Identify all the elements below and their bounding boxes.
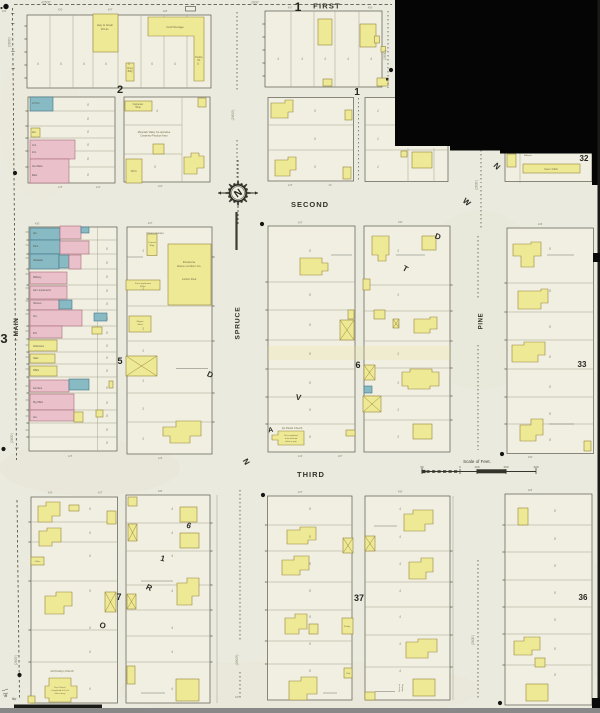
- svg-text:4: 4: [171, 589, 173, 593]
- svg-text:430: 430: [398, 490, 403, 494]
- svg-text:4: 4: [171, 507, 173, 511]
- svg-text:Completed & Occ'd: Completed & Occ'd: [51, 689, 70, 692]
- svg-text:Hardware: Hardware: [33, 260, 44, 262]
- svg-text:438: 438: [158, 489, 163, 493]
- svg-text:Billiards: Billiards: [524, 154, 533, 157]
- svg-text:125: 125: [58, 185, 63, 189]
- svg-text:4: 4: [171, 626, 173, 630]
- svg-text:6: 6: [314, 165, 316, 169]
- svg-text:4: 4: [171, 554, 173, 558]
- svg-text:6: 6: [105, 62, 107, 66]
- svg-text:8: 8: [549, 355, 551, 359]
- svg-text:3: 3: [397, 352, 399, 356]
- svg-text:Tailor: Tailor: [33, 358, 39, 360]
- svg-text:430: 430: [368, 6, 373, 10]
- svg-text:Scale of Feet.: Scale of Feet.: [463, 459, 491, 464]
- svg-text:6: 6: [355, 360, 360, 370]
- svg-text:4: 4: [370, 57, 372, 61]
- svg-text:2: 2: [117, 84, 123, 96]
- svg-text:8: 8: [554, 647, 556, 651]
- svg-text:4: 4: [301, 57, 303, 61]
- svg-text:8: 8: [87, 173, 89, 177]
- svg-text:Ptg Office: Ptg Office: [33, 401, 44, 404]
- svg-text:100: 100: [474, 465, 479, 469]
- svg-text:8: 8: [554, 537, 556, 541]
- svg-text:6: 6: [314, 109, 316, 113]
- svg-text:426: 426: [538, 222, 543, 226]
- svg-text:8: 8: [309, 669, 311, 673]
- svg-text:8: 8: [554, 673, 556, 677]
- svg-text:430: 430: [2, 9, 7, 13]
- svg-text:32: 32: [580, 154, 589, 163]
- svg-text:FIRST: FIRST: [313, 2, 341, 11]
- svg-text:Gro.: Gro.: [33, 233, 38, 235]
- svg-text:8: 8: [106, 369, 108, 373]
- svg-text:8: 8: [106, 247, 108, 251]
- svg-text:3: 3: [142, 379, 144, 383]
- svg-text:2: 2: [376, 137, 379, 141]
- svg-text:6: 6: [154, 165, 156, 169]
- svg-text:(2600′): (2600′): [14, 655, 18, 665]
- svg-text:D.G.: D.G.: [32, 152, 37, 154]
- svg-text:1st Presbyn Church: 1st Presbyn Church: [50, 669, 74, 673]
- svg-text:(2600′): (2600′): [8, 37, 12, 47]
- svg-text:6: 6: [60, 62, 62, 66]
- svg-text:3: 3: [397, 435, 399, 439]
- svg-text:(Opera House): (Opera House): [146, 231, 163, 235]
- svg-text:Bank: Bank: [32, 175, 38, 177]
- svg-text:6: 6: [314, 137, 316, 141]
- svg-text:400: 400: [528, 455, 533, 459]
- svg-text:3: 3: [397, 249, 399, 253]
- svg-text:4: 4: [156, 109, 158, 113]
- svg-text:THIRD: THIRD: [297, 470, 325, 479]
- svg-text:6: 6: [37, 62, 39, 66]
- svg-text:3: 3: [142, 349, 144, 353]
- svg-text:1st Parish Church: 1st Parish Church: [282, 426, 303, 430]
- svg-text:8: 8: [309, 249, 311, 253]
- svg-text:8: 8: [549, 247, 551, 251]
- svg-text:within a year: within a year: [285, 440, 297, 443]
- svg-text:Gro.: Gro.: [32, 132, 37, 134]
- svg-text:4: 4: [171, 650, 173, 654]
- svg-text:3: 3: [142, 437, 144, 441]
- svg-text:8: 8: [309, 615, 311, 619]
- svg-text:8: 8: [87, 157, 89, 161]
- svg-text:3: 3: [142, 407, 144, 411]
- svg-text:437: 437: [298, 490, 303, 494]
- svg-text:1: 1: [295, 0, 302, 14]
- svg-text:A.H.Co: A.H.Co: [31, 102, 40, 105]
- svg-text:4: 4: [399, 615, 401, 619]
- svg-text:33: 33: [578, 360, 587, 369]
- svg-text:Office: Office: [35, 561, 41, 563]
- svg-text:430: 430: [48, 491, 53, 495]
- svg-text:6: 6: [151, 62, 153, 66]
- svg-text:Bldg: Bldg: [128, 70, 133, 73]
- svg-text:3: 3: [397, 408, 399, 412]
- svg-text:Shed: Shed: [137, 324, 143, 326]
- svg-text:430: 430: [58, 8, 63, 12]
- svg-text:8: 8: [309, 435, 311, 439]
- svg-text:437: 437: [98, 491, 103, 495]
- svg-text:6: 6: [89, 626, 91, 630]
- svg-text:4: 4: [171, 531, 173, 535]
- svg-text:5: 5: [117, 356, 122, 366]
- svg-text:First Church: First Church: [54, 686, 66, 689]
- svg-text:8: 8: [549, 289, 551, 293]
- svg-text:W.Ho.: W.Ho.: [131, 170, 138, 173]
- svg-text:6: 6: [89, 687, 91, 691]
- svg-text:8: 8: [309, 352, 311, 356]
- svg-text:437: 437: [288, 6, 293, 10]
- svg-text:8: 8: [106, 428, 108, 432]
- svg-text:Farm Implement: Farm Implement: [135, 282, 151, 285]
- svg-text:Office: Office: [33, 370, 40, 372]
- svg-text:2: 2: [376, 109, 379, 113]
- svg-text:MAIN: MAIN: [13, 318, 20, 337]
- svg-text:Cold Storage: Cold Storage: [166, 25, 184, 29]
- svg-text:(2600′): (2600′): [10, 433, 14, 443]
- svg-text:8: 8: [87, 143, 89, 147]
- svg-text:8: 8: [309, 535, 311, 539]
- svg-text:4: 4: [399, 507, 401, 511]
- svg-text:6: 6: [89, 554, 91, 558]
- svg-text:4: 4: [324, 57, 326, 61]
- svg-text:Poultry: Poultry: [344, 625, 350, 628]
- svg-text:3: 3: [397, 381, 399, 385]
- svg-text:437: 437: [108, 8, 113, 12]
- svg-text:3: 3: [397, 293, 399, 297]
- svg-text:8: 8: [106, 317, 108, 321]
- svg-text:1: 1: [354, 87, 360, 98]
- svg-text:3: 3: [0, 331, 7, 346]
- svg-text:438: 438: [163, 9, 168, 13]
- svg-text:8: 8: [106, 441, 108, 445]
- svg-text:8: 8: [549, 438, 551, 442]
- svg-text:430: 430: [35, 222, 40, 226]
- svg-text:42500′: 42500′: [41, 1, 51, 5]
- svg-text:Harness: Harness: [33, 303, 42, 305]
- svg-text:4: 4: [399, 562, 401, 566]
- svg-text:Millinery: Millinery: [33, 277, 42, 279]
- svg-text:8: 8: [106, 302, 108, 306]
- svg-text:4: 4: [399, 589, 401, 593]
- svg-text:8: 8: [549, 325, 551, 329]
- svg-text:(2600′): (2600′): [383, 50, 387, 60]
- svg-text:Lumber Shed: Lumber Shed: [182, 278, 197, 281]
- svg-text:Gro.: Gro.: [33, 417, 38, 419]
- svg-text:8: 8: [309, 381, 311, 385]
- svg-text:6: 6: [89, 507, 91, 511]
- svg-text:6: 6: [197, 62, 199, 66]
- svg-text:200: 200: [503, 465, 508, 469]
- svg-text:3: 3: [142, 327, 144, 331]
- svg-text:4: 4: [399, 642, 401, 646]
- svg-text:6: 6: [89, 589, 91, 593]
- svg-text:8: 8: [309, 562, 311, 566]
- svg-text:300: 300: [533, 465, 538, 469]
- svg-text:8: 8: [106, 344, 108, 348]
- svg-text:8: 8: [554, 509, 556, 513]
- svg-text:120: 120: [298, 454, 303, 458]
- svg-text:426: 426: [528, 488, 533, 492]
- svg-text:3: 3: [142, 287, 144, 291]
- svg-text:Cement: Cement: [148, 241, 156, 244]
- svg-text:B.S.: B.S.: [33, 333, 38, 335]
- svg-text:437: 437: [338, 454, 343, 458]
- svg-text:8: 8: [106, 331, 108, 335]
- svg-text:7: 7: [116, 592, 121, 602]
- svg-text:to be finished: to be finished: [285, 437, 298, 440]
- svg-text:437: 437: [298, 221, 303, 225]
- svg-text:60′: 60′: [235, 695, 239, 699]
- svg-text:Clubrooms: Clubrooms: [33, 346, 45, 348]
- svg-text:Gem Club: Gem Club: [544, 167, 558, 171]
- svg-text:8: 8: [309, 323, 311, 327]
- svg-text:2600′: 2600′: [251, 1, 259, 5]
- svg-text:Home Lumber Co.: Home Lumber Co.: [177, 264, 202, 268]
- svg-text:4: 4: [171, 687, 173, 691]
- svg-text:Gro.: Gro.: [33, 316, 38, 318]
- svg-text:2: 2: [376, 165, 379, 169]
- svg-text:G.S.: G.S.: [32, 145, 37, 147]
- svg-text:8: 8: [106, 275, 108, 279]
- svg-text:Shop: Shop: [135, 106, 141, 109]
- svg-text:36: 36: [579, 593, 588, 602]
- svg-text:dwelling: dwelling: [402, 684, 404, 691]
- svg-text:8: 8: [106, 261, 108, 265]
- svg-text:Not completed: Not completed: [284, 434, 298, 437]
- svg-text:8: 8: [309, 408, 311, 412]
- svg-text:6: 6: [83, 62, 85, 66]
- svg-text:B & L: B & L: [33, 246, 39, 248]
- svg-text:3: 3: [397, 323, 399, 327]
- svg-text:Furniture: Furniture: [33, 387, 43, 390]
- svg-text:8: 8: [309, 642, 311, 646]
- svg-text:8: 8: [554, 564, 556, 568]
- svg-text:(2600′): (2600′): [475, 180, 479, 190]
- svg-text:50: 50: [420, 465, 424, 469]
- svg-text:4: 4: [399, 535, 401, 539]
- svg-text:(2600′): (2600′): [235, 655, 239, 666]
- svg-text:Bldg: Bldg: [150, 245, 155, 247]
- svg-text:Gen.Mdse: Gen.Mdse: [32, 166, 43, 168]
- svg-text:4: 4: [399, 669, 401, 673]
- svg-text:SPRUCE: SPRUCE: [235, 306, 242, 339]
- svg-text:430: 430: [398, 220, 403, 224]
- svg-text:6: 6: [89, 650, 91, 654]
- svg-text:4: 4: [277, 57, 279, 61]
- svg-text:6: 6: [89, 531, 91, 535]
- svg-text:after survey: after survey: [55, 692, 67, 695]
- svg-text:37: 37: [354, 593, 364, 603]
- svg-text:3: 3: [142, 249, 144, 253]
- svg-text:126: 126: [158, 456, 163, 460]
- svg-text:4: 4: [347, 57, 349, 61]
- svg-text:6: 6: [128, 62, 130, 66]
- svg-text:Wagon: Wagon: [137, 321, 145, 323]
- svg-text:(2600′): (2600′): [231, 110, 235, 121]
- svg-text:8: 8: [554, 618, 556, 622]
- svg-text:8: 8: [87, 130, 89, 134]
- svg-text:Creamery-Produce Assn: Creamery-Produce Assn: [140, 135, 168, 138]
- svg-text:210: 210: [157, 184, 163, 188]
- svg-text:8: 8: [309, 507, 311, 511]
- svg-text:Farm Implements: Farm Implements: [33, 289, 52, 292]
- svg-text:W.Ho.: W.Ho.: [101, 27, 109, 31]
- svg-text:8: 8: [106, 414, 108, 418]
- svg-text:(2600′): (2600′): [471, 635, 475, 645]
- svg-text:8: 8: [106, 386, 108, 390]
- svg-text:Ruins of: Ruins of: [399, 684, 401, 692]
- svg-text:SECOND: SECOND: [291, 200, 329, 209]
- svg-text:8: 8: [549, 412, 551, 416]
- svg-text:8: 8: [309, 293, 311, 297]
- svg-text:120: 120: [96, 185, 101, 189]
- svg-text:125: 125: [68, 454, 73, 458]
- svg-text:437: 437: [148, 221, 153, 225]
- svg-text:8: 8: [106, 356, 108, 360]
- svg-text:8: 8: [87, 103, 89, 107]
- svg-text:8: 8: [106, 401, 108, 405]
- svg-text:8: 8: [309, 589, 311, 593]
- svg-text:125: 125: [288, 183, 293, 187]
- svg-text:8: 8: [106, 289, 108, 293]
- svg-text:8: 8: [549, 385, 551, 389]
- svg-text:6: 6: [174, 62, 176, 66]
- svg-text:PINE: PINE: [479, 313, 485, 329]
- svg-text:8: 8: [87, 117, 89, 121]
- svg-text:8: 8: [554, 591, 556, 595]
